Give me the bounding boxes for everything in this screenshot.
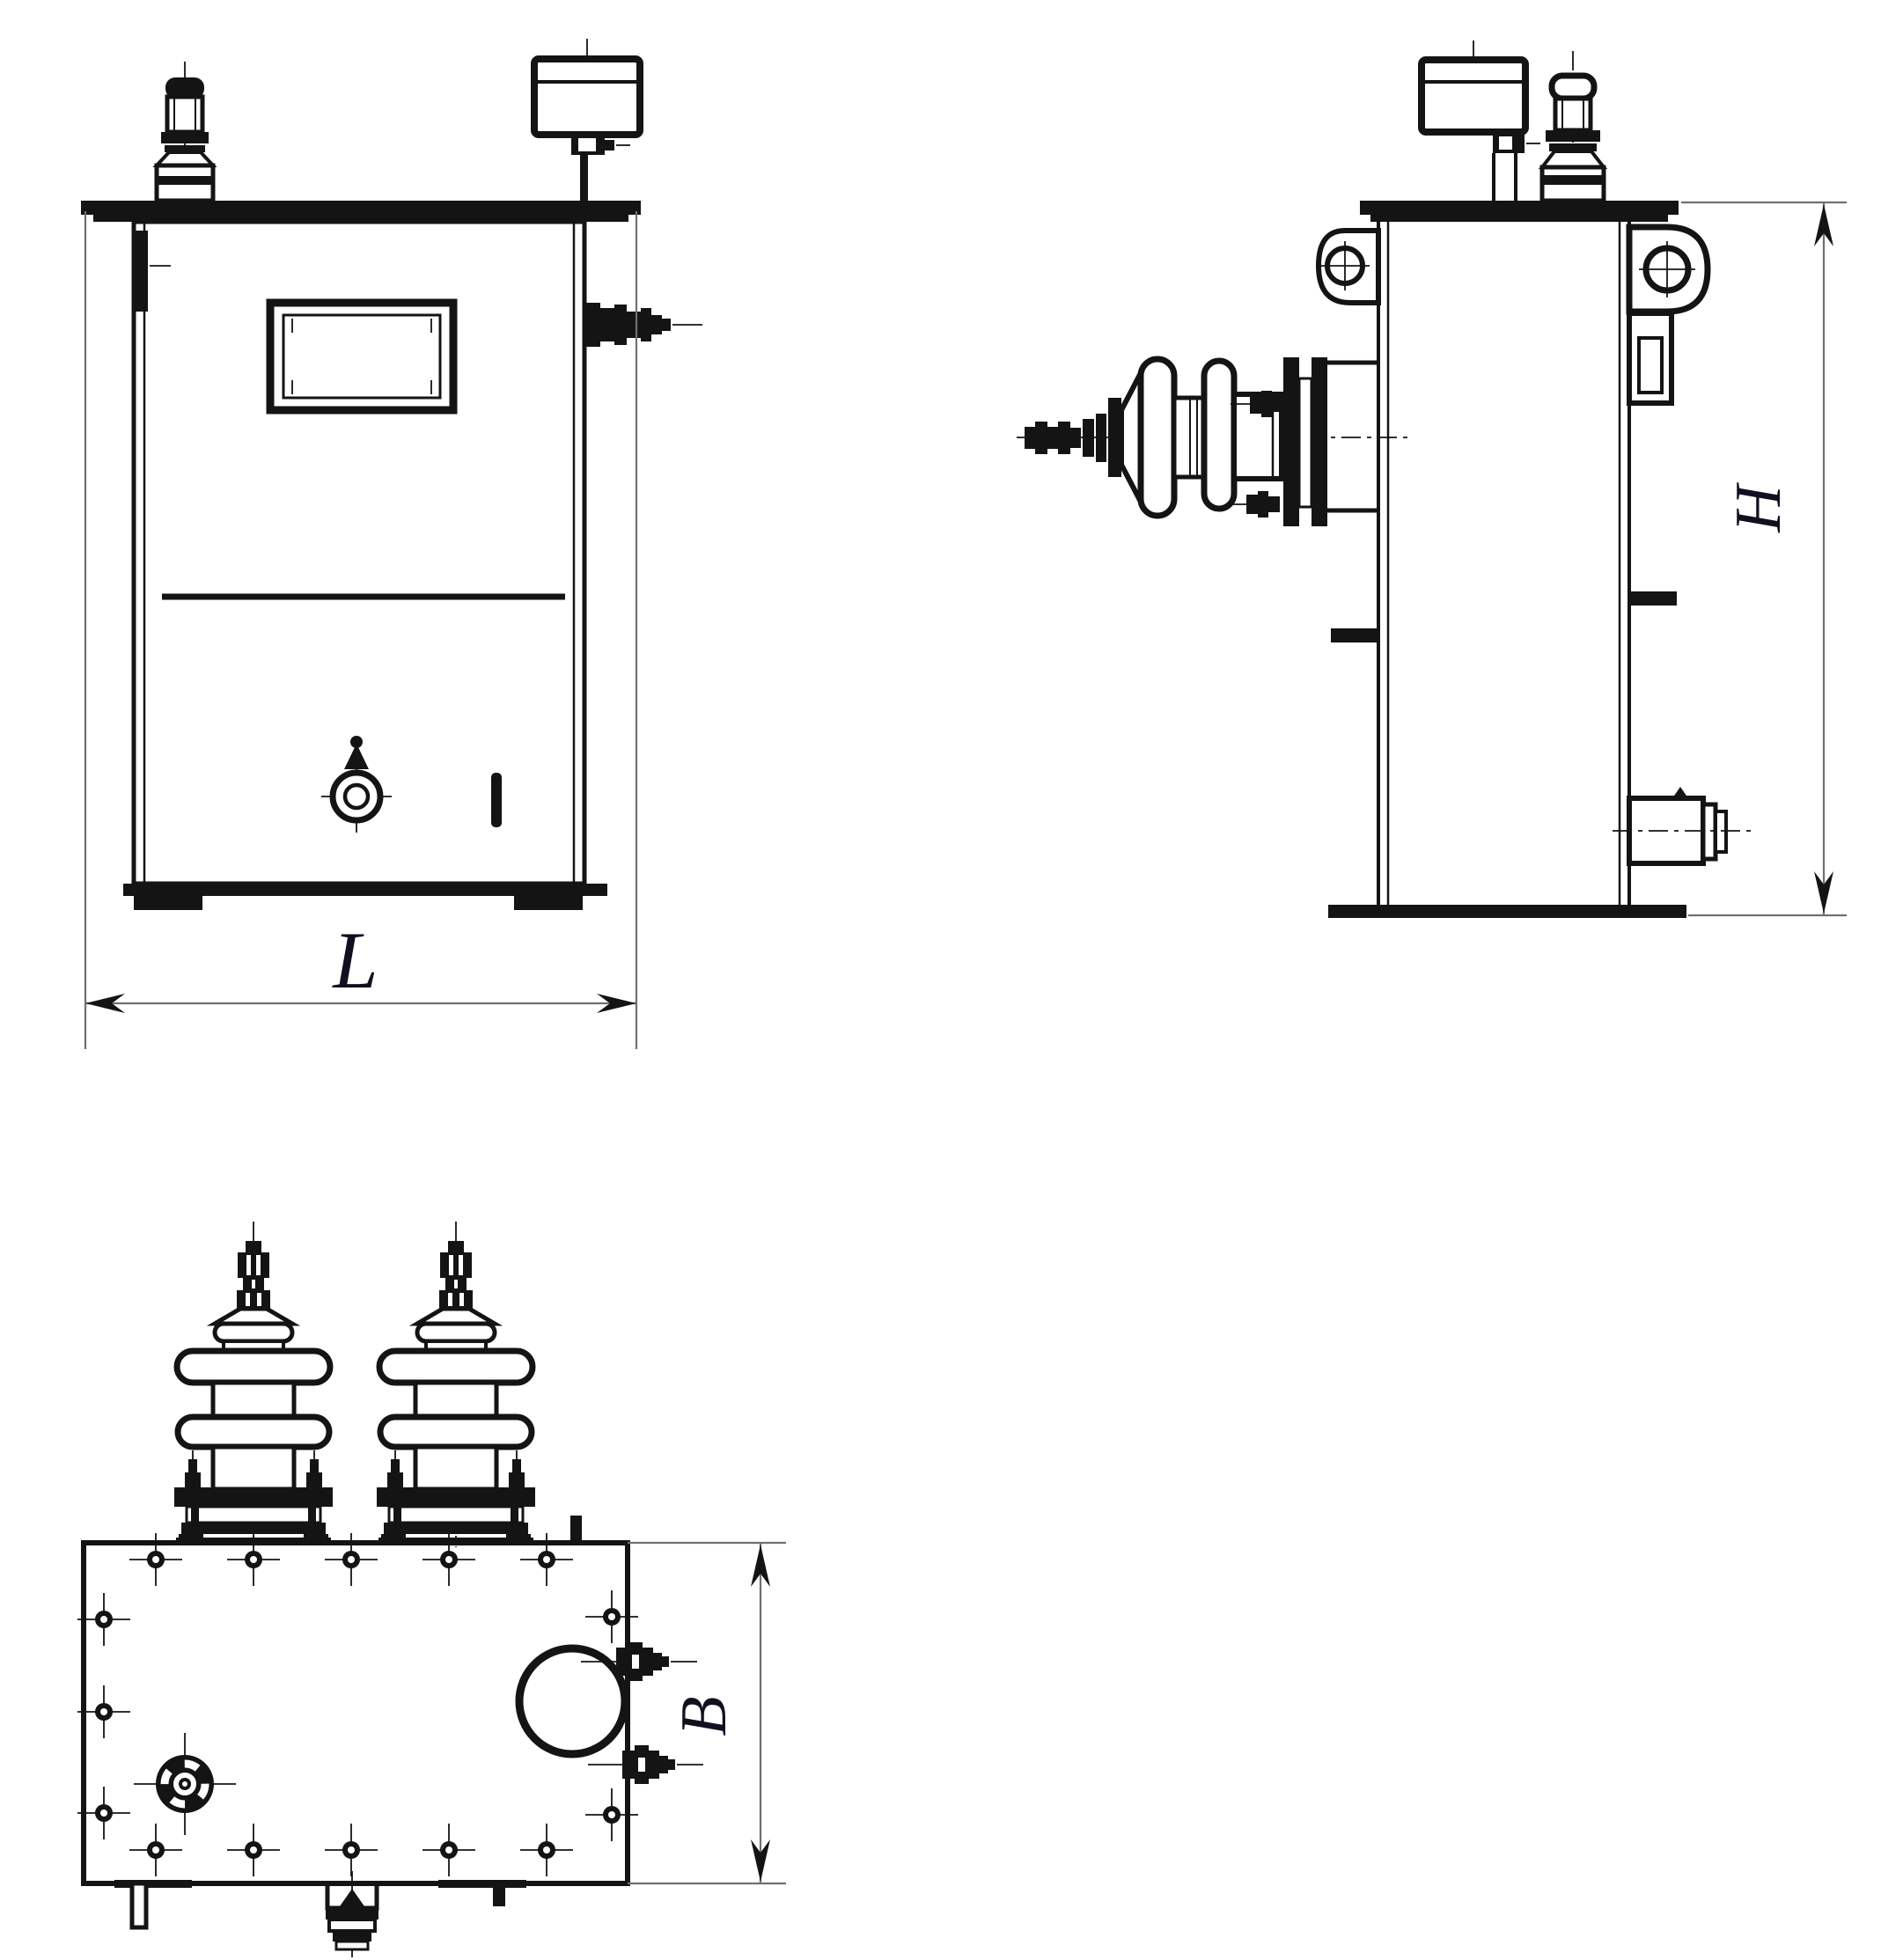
dimension-label-H: H — [1723, 482, 1795, 533]
hinge-plate — [136, 231, 148, 312]
hv-insulator-left — [174, 1222, 333, 1547]
dimension-label-B: B — [668, 1696, 740, 1736]
foot-left — [134, 896, 202, 910]
foot-right — [514, 896, 583, 910]
hv-insulator-right — [377, 1222, 535, 1547]
side-view — [1017, 40, 1753, 918]
lv-terminal-stud-front — [585, 303, 702, 347]
bracket-tab-left — [1331, 628, 1378, 642]
lv-bushing-front — [157, 62, 213, 220]
dimension-B: B — [628, 1543, 786, 1883]
plan-tab-left — [132, 1883, 146, 1927]
drawing-page: L H B — [0, 0, 1903, 1960]
oil-level-mark — [491, 773, 502, 827]
lifting-lug-right — [1629, 227, 1708, 312]
manhole-cover — [519, 1648, 625, 1754]
lid-tab — [570, 1516, 582, 1543]
bracket-tab-right — [1629, 591, 1677, 606]
base-plate — [1328, 905, 1686, 918]
tank-bottom — [123, 884, 607, 896]
front-view — [81, 39, 702, 910]
transformer-outline-drawing: L H B — [0, 0, 1903, 1960]
lifting-lug-left — [1319, 231, 1378, 303]
nameplate — [270, 303, 453, 410]
terminal-box-front — [534, 39, 640, 201]
plan-tab-right — [493, 1883, 505, 1906]
plan-view — [77, 1222, 703, 1957]
terminal-box-side — [1422, 40, 1540, 202]
mounting-bracket — [1629, 313, 1672, 403]
hv-bushing-side — [1017, 357, 1408, 526]
tank-lid-side — [1360, 201, 1679, 215]
dimension-label-L: L — [331, 915, 378, 1005]
drain-valve-side — [1613, 787, 1753, 863]
lv-bushing-side — [1542, 51, 1604, 215]
